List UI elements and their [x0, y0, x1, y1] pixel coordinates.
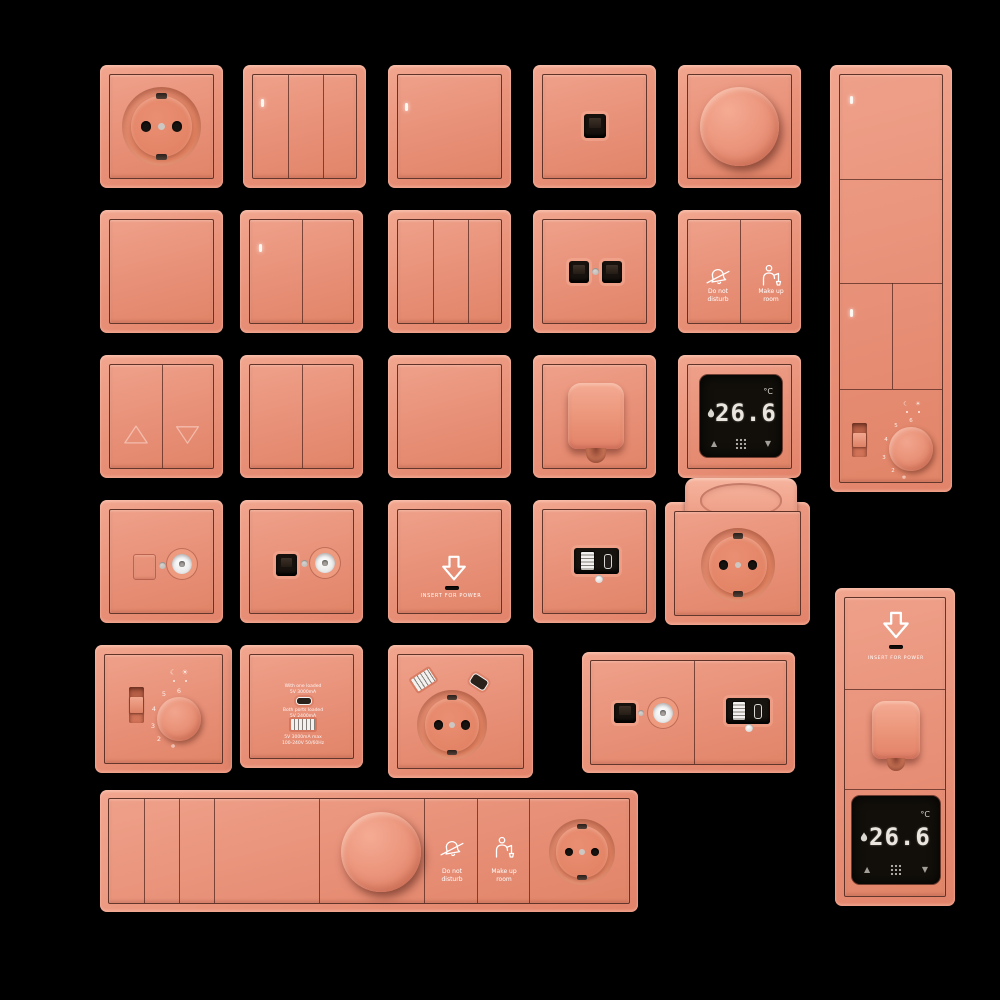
usb-a-port: [291, 719, 315, 730]
data-outlet-plate: [533, 65, 656, 188]
indicator-dot: [638, 710, 644, 716]
rocker-1[interactable]: [109, 799, 144, 905]
thermostat-dial[interactable]: [889, 427, 933, 471]
usb-a-port: [411, 668, 436, 691]
card-slot[interactable]: [889, 645, 903, 649]
temp-down-button[interactable]: ▼: [922, 866, 928, 874]
rocker-2[interactable]: [840, 180, 944, 283]
ground-clip-top: [156, 93, 167, 99]
day-mode-icon: ☀: [182, 670, 188, 677]
ground-clip-bottom: [577, 875, 586, 880]
data-usb-combo-plate: [582, 652, 795, 773]
strip-frame: Do notdisturb Make uproom: [108, 798, 630, 904]
insert-for-power-label: INSERT FOR POWER: [868, 655, 924, 663]
rocker-wide[interactable]: [214, 799, 319, 905]
thermostat-frame: 26.6 °C ▲ ▼: [687, 364, 792, 469]
dial-mark: 6: [909, 418, 913, 424]
usb-a-port: [733, 702, 745, 720]
thermostat-display: 26.6 °C ▲ ▼: [852, 796, 940, 884]
switch-2gang-plate: [240, 355, 363, 478]
rocker-group: Do notdisturb Make uproom: [687, 219, 792, 324]
indicator-dot: [745, 724, 753, 732]
do-not-disturb-label: Do notdisturb: [707, 288, 728, 303]
dual-data-outlet-plate: [533, 210, 656, 333]
indicator-dot: [592, 268, 599, 275]
divider: [892, 283, 893, 389]
dial-mark: 4: [884, 437, 888, 443]
divider: [840, 389, 942, 390]
divider: [323, 75, 324, 178]
keycard-socket-thermostat-panel: INSERT FOR POWER 26.6 °C ▲ ▼: [835, 588, 955, 906]
blank-port: [133, 554, 156, 580]
data-port: [584, 114, 606, 138]
lidded-socket-plate: [665, 502, 810, 625]
port-pins: [589, 118, 601, 129]
thermostat-display: 26.6 °C ▲ ▼: [700, 375, 782, 457]
multi-gang-strip: Do notdisturb Make uproom: [100, 790, 638, 912]
rocker-group[interactable]: [397, 219, 502, 324]
ground-clip-top: [733, 533, 743, 539]
ground-clip-bottom: [733, 591, 743, 597]
temp-up-button[interactable]: ▲: [711, 440, 717, 448]
usb-charger-plate: With one loaded5V 3000mA Both ports load…: [240, 645, 363, 768]
led-indicator: [405, 103, 408, 111]
schuko-socket: [417, 690, 487, 760]
mode-dot: [918, 411, 920, 413]
day-mode-icon: ☀: [915, 401, 920, 408]
coax-connector: [172, 554, 192, 574]
coax-center: [660, 710, 665, 715]
thermostat-frame: 6 5 4 3 2 ❄ ☾ ☀: [104, 654, 223, 764]
rocker[interactable]: [397, 364, 502, 469]
port-pins: [281, 558, 293, 568]
divider: [840, 283, 942, 284]
ground-clip-bottom: [447, 750, 457, 756]
tv-outlet-blank-plate: [100, 500, 223, 623]
dimmer-knob[interactable]: [700, 87, 779, 166]
data-port-left: [569, 261, 589, 283]
temperature-unit: °C: [763, 387, 773, 396]
panel-frame: INSERT FOR POWER 26.6 °C ▲ ▼: [844, 597, 946, 897]
pin-hole-left: [141, 121, 151, 131]
indicator-dot: [159, 562, 166, 569]
blinds-up-icon: [123, 424, 149, 445]
rocker[interactable]: [109, 219, 214, 324]
indicator-dot: [595, 575, 603, 583]
rocker-1[interactable]: [840, 75, 944, 179]
temperature-unit: °C: [920, 810, 930, 819]
switch-3gang-led-plate: [243, 65, 366, 188]
divider: [694, 661, 695, 764]
usb-outlet-plate: [533, 500, 656, 623]
dial-mark: 3: [882, 455, 886, 461]
data-port: [276, 554, 297, 576]
mode-dot: [185, 680, 187, 682]
coax-connector: [315, 553, 335, 573]
schuko-socket-plate: [100, 65, 223, 188]
socket-frame: [542, 364, 647, 469]
divider: [302, 220, 303, 323]
temperature-value: 26.6: [715, 399, 777, 427]
make-up-room-label: Make uproom: [758, 288, 783, 303]
center-pin: [579, 849, 585, 855]
led-indicator: [850, 96, 853, 104]
product-grid: 6 5 4 3 2 ❄ ☾ ☀: [0, 0, 1000, 1000]
blinds-up-button[interactable]: [110, 365, 162, 470]
socket-cover-flap[interactable]: [568, 383, 624, 449]
keycard-slot-panel[interactable]: INSERT FOR POWER: [397, 509, 502, 614]
switch-1gang-plate: [100, 210, 223, 333]
pin-hole-right: [172, 121, 182, 131]
pin-hole-left: [719, 560, 729, 570]
usb-c-rating-label: With one loaded5V 3000mA: [285, 684, 322, 695]
dial-mark: 6: [177, 687, 181, 695]
blinds-down-icon: [174, 425, 201, 445]
tv-data-outlet-plate: [240, 500, 363, 623]
rocker[interactable]: [397, 74, 502, 179]
usb-c-port: [604, 554, 612, 569]
night-mode-icon: ☾: [903, 401, 908, 408]
port-pins: [606, 265, 617, 275]
usb-module: [574, 548, 619, 574]
digital-thermostat-plate: 26.6 °C ▲ ▼: [678, 355, 801, 478]
rocker-group[interactable]: [249, 364, 354, 469]
usb-a-port: [581, 552, 594, 570]
temp-down-button[interactable]: ▼: [765, 440, 771, 448]
keycard-holder-plate: INSERT FOR POWER: [388, 500, 511, 623]
menu-dots-icon[interactable]: [890, 864, 901, 875]
schuko-socket: [701, 528, 775, 602]
rocker-3[interactable]: [179, 799, 214, 905]
usb-c-port: [468, 672, 490, 692]
schuko-socket: [549, 819, 615, 885]
switch-1gang-led-plate: [388, 65, 511, 188]
divider: [468, 220, 469, 323]
coax-connector: [653, 703, 673, 723]
data-port-right: [602, 261, 622, 283]
schuko-socket: [122, 87, 201, 166]
heating-icon: [860, 832, 868, 843]
mode-lever-slot: [852, 423, 867, 457]
dial-mark: 5: [894, 423, 898, 429]
divider: [288, 75, 289, 178]
frost-mark-icon: ❄: [171, 744, 176, 750]
pin-hole-right: [748, 560, 758, 570]
temp-up-button[interactable]: ▲: [864, 866, 870, 874]
heating-icon: [707, 408, 715, 419]
mode-dot: [173, 680, 175, 682]
rocker-3-left[interactable]: [840, 284, 892, 389]
mode-dot: [906, 411, 908, 413]
dial-mark: 2: [157, 735, 161, 743]
flap-thumb-notch: [586, 448, 606, 463]
dial-mark: 3: [151, 722, 155, 730]
hotel-service-switch-plate: Do notdisturb Make uproom: [678, 210, 801, 333]
dimmer-knob[interactable]: [341, 812, 421, 892]
pin-hole-left: [434, 720, 443, 729]
port-pins: [619, 706, 631, 715]
make-up-room-label: Make uproom: [491, 868, 516, 883]
divider: [319, 799, 320, 903]
flap-thumb-notch: [887, 758, 905, 771]
charger-panel: With one loaded5V 3000mA Both ports load…: [249, 654, 354, 759]
insert-card-arrow-icon: [439, 555, 469, 582]
divider: [302, 365, 303, 468]
divider: [433, 220, 434, 323]
usb-c-port: [754, 704, 762, 719]
mode-lever-slot: [129, 687, 144, 723]
rocker-group[interactable]: [249, 219, 354, 324]
outlet-frame: [109, 509, 214, 614]
switch-1gang-large-plate: [388, 355, 511, 478]
port-pins: [573, 265, 584, 275]
socket-usb-plate: [388, 645, 533, 778]
mode-lever[interactable]: [853, 433, 866, 448]
data-port: [614, 703, 636, 723]
blinds-down-button[interactable]: [163, 365, 215, 470]
coax-center: [322, 560, 327, 565]
switch-2gang-led-plate: [240, 210, 363, 333]
make-up-room-icon: [759, 264, 783, 286]
rocker-2[interactable]: [144, 799, 179, 905]
dimmer-plate: [678, 65, 801, 188]
usb-module: [726, 698, 770, 724]
covered-socket-plate: [533, 355, 656, 478]
ground-clip-top: [447, 695, 457, 701]
outlet-frame: [542, 219, 647, 324]
divider: [845, 689, 945, 690]
do-not-disturb-label: Do notdisturb: [441, 868, 462, 883]
usb-a-rating-label: Both ports loaded5V 2400mA: [283, 708, 323, 719]
outlet-frame: [542, 74, 647, 179]
insert-for-power-label: INSERT FOR POWER: [421, 593, 482, 601]
dial-mark: 5: [162, 690, 166, 698]
frost-mark-icon: ❄: [902, 475, 906, 481]
pin-hole-right: [461, 720, 470, 729]
rotary-thermostat-plate: 6 5 4 3 2 ❄ ☾ ☀: [95, 645, 232, 773]
coax-center: [179, 561, 184, 566]
switch-3gang-plate: [388, 210, 511, 333]
ground-clip-top: [577, 824, 586, 829]
outlet-frame: [542, 509, 647, 614]
led-indicator: [259, 244, 262, 252]
center-pin: [158, 123, 165, 130]
ground-clip-bottom: [156, 154, 167, 160]
temperature-value: 26.6: [869, 823, 931, 851]
led-indicator: [850, 309, 853, 317]
divider: [845, 789, 945, 790]
insert-card-arrow-icon: [879, 611, 913, 640]
indicator-dot: [301, 560, 308, 567]
usb-c-port: [296, 697, 312, 705]
menu-dots-icon[interactable]: [735, 438, 746, 449]
dial-mark: 4: [152, 705, 156, 713]
led-indicator: [261, 99, 264, 107]
panel-frame: 6 5 4 3 2 ❄ ☾ ☀: [839, 74, 943, 483]
thermostat-dial[interactable]: [157, 697, 201, 741]
make-up-room-icon: [492, 836, 516, 858]
do-not-disturb-icon: [439, 838, 465, 858]
mode-lever[interactable]: [130, 697, 143, 713]
charger-spec-label: 5V 3000mA max100-240V 50/60Hz: [282, 735, 324, 746]
do-not-disturb-icon: [705, 266, 731, 286]
night-mode-icon: ☾: [170, 670, 176, 677]
rocker-group[interactable]: [252, 74, 357, 179]
divider: [840, 179, 942, 180]
outlet-frame: [249, 509, 354, 614]
dial-mark: 2: [891, 468, 895, 474]
card-slot[interactable]: [445, 586, 459, 590]
multi-switch-thermostat-panel: 6 5 4 3 2 ❄ ☾ ☀: [830, 65, 952, 492]
outlet-frame: [590, 660, 787, 765]
socket-cover-flap[interactable]: [872, 701, 920, 759]
rocker-3-right[interactable]: [893, 284, 944, 389]
divider: [529, 799, 530, 903]
rocker-group: [109, 364, 214, 469]
socket-frame: [397, 654, 524, 769]
blinds-switch-plate: [100, 355, 223, 478]
